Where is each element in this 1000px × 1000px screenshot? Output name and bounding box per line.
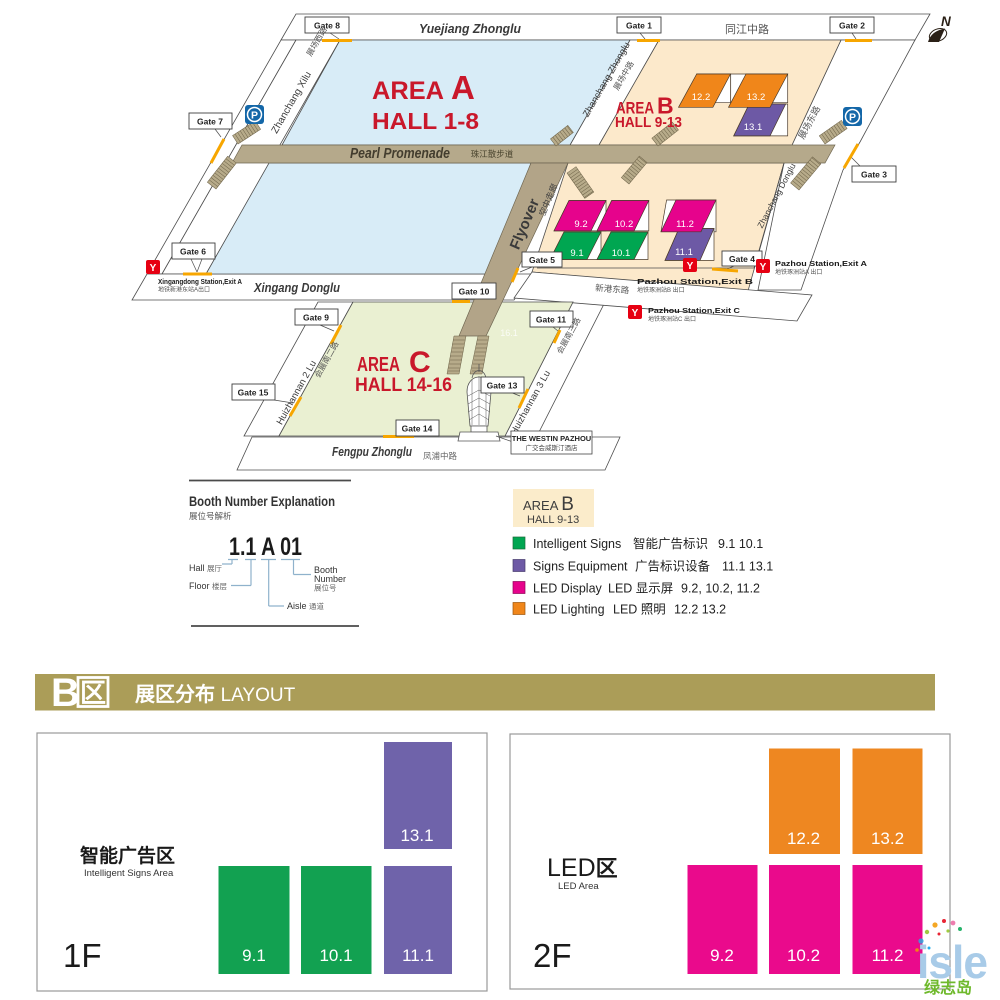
svg-text:9.1: 9.1 bbox=[242, 946, 266, 965]
svg-text:11.1: 11.1 bbox=[675, 247, 693, 258]
svg-text:Gate 11: Gate 11 bbox=[536, 315, 567, 325]
svg-text:LED LightingLED 照明12.2 13.2: LED LightingLED 照明12.2 13.2 bbox=[533, 603, 726, 617]
svg-text:10.2: 10.2 bbox=[787, 946, 820, 965]
svg-text:Intelligent Signs智能广告标识9.1 10.: Intelligent Signs智能广告标识9.1 10.1 bbox=[533, 536, 763, 551]
svg-text:地铁琢洲站B 出口: 地铁琢洲站B 出口 bbox=[637, 286, 685, 294]
svg-text:Y: Y bbox=[632, 308, 639, 319]
svg-text:A: A bbox=[451, 69, 475, 106]
svg-text:Gate 13: Gate 13 bbox=[487, 381, 518, 391]
svg-text:P: P bbox=[849, 112, 856, 124]
svg-text:11.1: 11.1 bbox=[402, 946, 434, 965]
svg-text:AREA B: AREA B bbox=[523, 494, 574, 515]
svg-text:广交会威斯汀酒店: 广交会威斯汀酒店 bbox=[526, 443, 579, 452]
svg-text:1F: 1F bbox=[63, 937, 102, 974]
svg-text:Intelligent Signs Area: Intelligent Signs Area bbox=[84, 868, 174, 879]
svg-text:10.1: 10.1 bbox=[319, 946, 352, 965]
svg-text:AREA: AREA bbox=[372, 77, 444, 105]
svg-text:10.2: 10.2 bbox=[615, 219, 634, 230]
svg-text:Xingang Donglu: Xingang Donglu bbox=[253, 280, 340, 295]
svg-text:HALL 1-8: HALL 1-8 bbox=[372, 108, 479, 134]
svg-text:Signs Equipment广告标识设备11.1 13.: Signs Equipment广告标识设备11.1 13.1 bbox=[533, 559, 773, 574]
svg-text:Gate 10: Gate 10 bbox=[459, 287, 490, 297]
svg-text:Floor 楼层: Floor 楼层 bbox=[189, 581, 228, 591]
svg-text:凤浦中路: 凤浦中路 bbox=[423, 451, 458, 461]
svg-text:9.2: 9.2 bbox=[574, 219, 587, 230]
svg-text:LED DisplayLED 显示屏9.2, 10.2, 1: LED DisplayLED 显示屏9.2, 10.2, 11.2 bbox=[533, 582, 760, 596]
svg-text:HALL 9-13: HALL 9-13 bbox=[527, 514, 579, 526]
svg-text:Aisle 通道: Aisle 通道 bbox=[287, 601, 325, 611]
svg-text:16.1: 16.1 bbox=[500, 328, 518, 338]
svg-text:地铁琢洲站A 出口: 地铁琢洲站A 出口 bbox=[775, 268, 822, 276]
svg-text:Gate 3: Gate 3 bbox=[861, 170, 887, 180]
svg-text:AREA: AREA bbox=[357, 353, 400, 376]
svg-text:1.1 A 01: 1.1 A 01 bbox=[229, 533, 302, 561]
svg-text:13.2: 13.2 bbox=[871, 829, 904, 848]
svg-text:Y: Y bbox=[150, 263, 157, 274]
svg-text:Gate 1: Gate 1 bbox=[626, 21, 652, 31]
svg-text:Xingangdong Station,Exit A: Xingangdong Station,Exit A bbox=[158, 277, 242, 286]
svg-text:展位号解析: 展位号解析 bbox=[189, 511, 232, 521]
svg-text:P: P bbox=[251, 110, 258, 122]
svg-text:Yuejiang Zhonglu: Yuejiang Zhonglu bbox=[419, 21, 521, 36]
svg-text:12.2: 12.2 bbox=[787, 829, 820, 848]
svg-text:Booth Number Explanation: Booth Number Explanation bbox=[189, 493, 335, 509]
svg-text:Fengpu Zhonglu: Fengpu Zhonglu bbox=[332, 444, 412, 459]
svg-text:11.2: 11.2 bbox=[872, 946, 904, 965]
svg-text:展区分布 LAYOUT: 展区分布 LAYOUT bbox=[135, 682, 296, 706]
svg-text:Y: Y bbox=[760, 262, 767, 273]
svg-text:Gate 4: Gate 4 bbox=[729, 254, 755, 264]
svg-text:地铁琢洲站C 出口: 地铁琢洲站C 出口 bbox=[648, 315, 696, 323]
svg-text:13.1: 13.1 bbox=[744, 122, 763, 133]
svg-text:THE WESTIN PAZHOU: THE WESTIN PAZHOU bbox=[512, 434, 591, 443]
svg-text:13.2: 13.2 bbox=[747, 92, 766, 103]
svg-text:9.1: 9.1 bbox=[570, 248, 583, 259]
svg-text:Gate 2: Gate 2 bbox=[839, 21, 865, 31]
svg-text:智能广告区: 智能广告区 bbox=[80, 844, 175, 867]
svg-text:B: B bbox=[51, 671, 80, 715]
svg-text:Gate 6: Gate 6 bbox=[180, 247, 206, 257]
svg-text:Pazhou Station,Exit C: Pazhou Station,Exit C bbox=[648, 306, 741, 315]
svg-text:N: N bbox=[941, 14, 951, 29]
svg-text:HALL 9-13: HALL 9-13 bbox=[615, 115, 682, 131]
svg-text:Gate 5: Gate 5 bbox=[529, 255, 555, 265]
svg-text:LED区: LED区 bbox=[547, 854, 618, 882]
svg-text:Pazhou Station,Exit A: Pazhou Station,Exit A bbox=[775, 259, 868, 268]
svg-text:10.1: 10.1 bbox=[612, 248, 631, 259]
svg-text:Gate 14: Gate 14 bbox=[402, 424, 433, 434]
svg-text:Gate 9: Gate 9 bbox=[303, 313, 329, 323]
svg-text:LED Area: LED Area bbox=[558, 881, 599, 892]
svg-text:11.2: 11.2 bbox=[676, 219, 694, 230]
svg-text:珠江散步道: 珠江散步道 bbox=[471, 149, 514, 159]
svg-text:Gate 7: Gate 7 bbox=[197, 117, 223, 127]
svg-text:9.2: 9.2 bbox=[710, 946, 734, 965]
svg-text:Gate 15: Gate 15 bbox=[238, 388, 269, 398]
svg-text:Y: Y bbox=[687, 261, 694, 272]
svg-text:Pearl Promenade: Pearl Promenade bbox=[350, 146, 450, 162]
svg-text:2F: 2F bbox=[533, 937, 572, 974]
svg-text:区: 区 bbox=[80, 678, 106, 708]
svg-text:13.1: 13.1 bbox=[400, 826, 433, 845]
svg-text:Number: Number bbox=[314, 574, 346, 584]
svg-text:Pazhou Station,Exit B: Pazhou Station,Exit B bbox=[637, 277, 754, 286]
svg-text:展位号: 展位号 bbox=[314, 583, 337, 593]
svg-text:Hall 展厅: Hall 展厅 bbox=[189, 563, 223, 573]
svg-text:HALL 14-16: HALL 14-16 bbox=[355, 375, 452, 396]
svg-text:12.2: 12.2 bbox=[692, 92, 711, 103]
svg-text:地铁新港东站A出口: 地铁新港东站A出口 bbox=[158, 286, 210, 294]
svg-text:绿志岛: 绿志岛 bbox=[924, 978, 972, 997]
svg-text:同江中路: 同江中路 bbox=[725, 23, 769, 36]
